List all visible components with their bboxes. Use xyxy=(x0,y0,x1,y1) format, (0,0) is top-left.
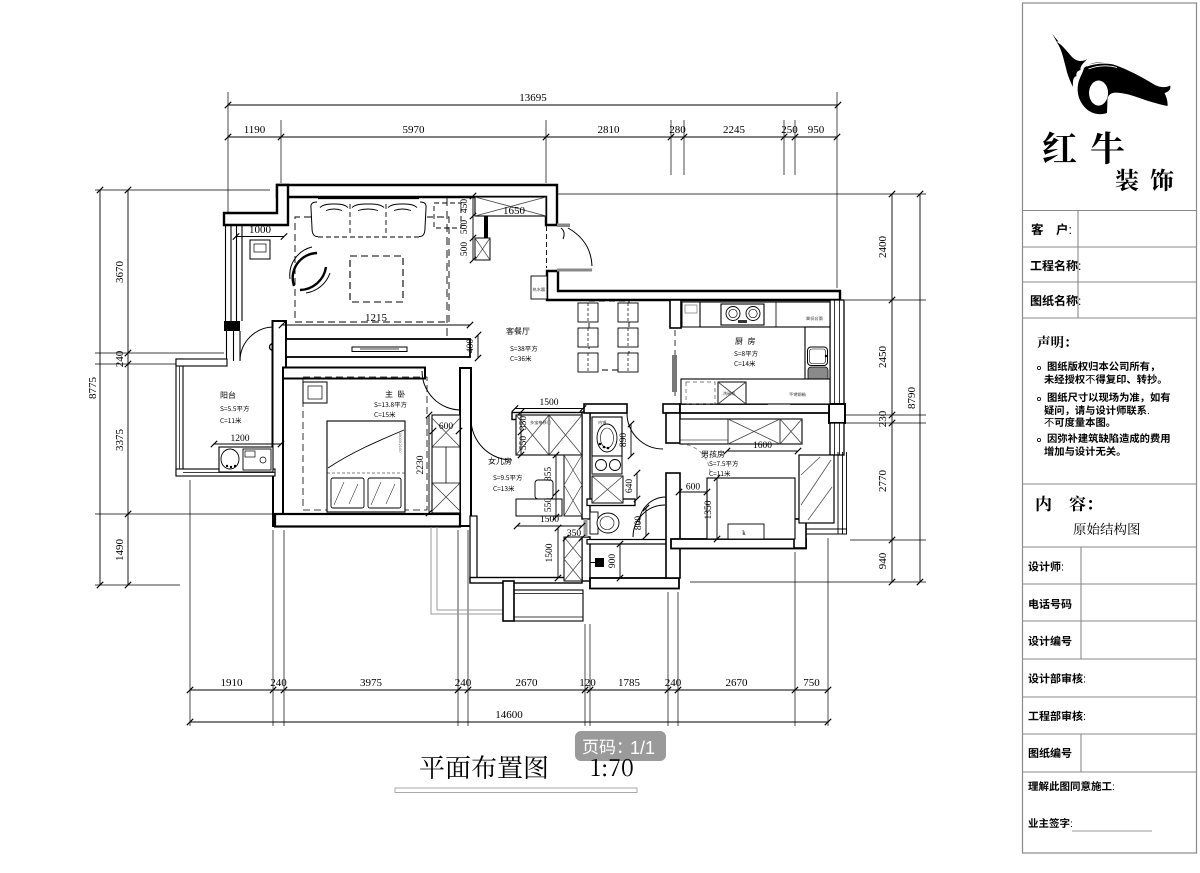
svg-text:13695: 13695 xyxy=(519,92,547,104)
svg-text:C=14米: C=14米 xyxy=(734,358,756,368)
svg-text:400: 400 xyxy=(466,339,476,354)
svg-text:业主签字:: 业主签字: xyxy=(1028,816,1073,831)
svg-text:1190: 1190 xyxy=(244,124,266,136)
svg-text:240: 240 xyxy=(665,677,682,689)
svg-text:890: 890 xyxy=(619,433,629,448)
svg-text:1600: 1600 xyxy=(753,441,772,451)
svg-text:855: 855 xyxy=(544,467,554,482)
svg-text:不可度量本图。: 不可度量本图。 xyxy=(1044,414,1116,429)
svg-text:多宝格移门: 多宝格移门 xyxy=(530,420,551,426)
svg-text:S=8平方: S=8平方 xyxy=(734,348,759,358)
svg-text:640: 640 xyxy=(625,479,635,494)
svg-text:S=13.8平方: S=13.8平方 xyxy=(374,399,408,409)
svg-text:女儿房: 女儿房 xyxy=(488,456,512,467)
svg-text:950: 950 xyxy=(808,124,825,136)
svg-text:C=15米: C=15米 xyxy=(374,409,396,419)
svg-text:8775: 8775 xyxy=(87,377,99,400)
svg-text:500: 500 xyxy=(460,220,470,235)
svg-text:450: 450 xyxy=(460,199,470,214)
svg-text:1800X2100: 1800X2100 xyxy=(398,432,403,453)
svg-text:2770: 2770 xyxy=(877,470,889,493)
svg-text:未经授权不得复印、转抄。: 未经授权不得复印、转抄。 xyxy=(1044,371,1168,386)
svg-text:2245: 2245 xyxy=(723,124,746,136)
svg-text:S=7.5平方: S=7.5平方 xyxy=(709,458,739,468)
svg-text:客餐厅: 客餐厅 xyxy=(506,326,530,337)
svg-text:240: 240 xyxy=(455,677,472,689)
svg-text:1785: 1785 xyxy=(618,677,641,689)
svg-text:理解此图同意施工:: 理解此图同意施工: xyxy=(1028,779,1115,794)
svg-text:设计部审核:: 设计部审核: xyxy=(1028,671,1086,687)
svg-text:C=11米: C=11米 xyxy=(220,415,242,425)
svg-text:声明：: 声明： xyxy=(1037,331,1078,351)
svg-text:2670: 2670 xyxy=(726,677,749,689)
svg-text:550: 550 xyxy=(519,436,529,451)
svg-text:900: 900 xyxy=(608,554,618,569)
svg-text:洗碗机: 洗碗机 xyxy=(723,391,736,397)
svg-text:500: 500 xyxy=(460,242,470,257)
svg-text:1500: 1500 xyxy=(545,543,555,562)
svg-text:8790: 8790 xyxy=(906,387,918,410)
svg-text:2230: 2230 xyxy=(416,455,426,474)
svg-text:1000: 1000 xyxy=(249,224,272,236)
svg-text:工程部审核:: 工程部审核: xyxy=(1028,708,1086,724)
svg-text:C=36米: C=36米 xyxy=(510,353,532,363)
svg-text:230: 230 xyxy=(877,410,889,427)
svg-text:2810: 2810 xyxy=(598,124,621,136)
svg-text:940: 940 xyxy=(877,552,889,569)
svg-text:厨 房: 厨 房 xyxy=(735,336,755,347)
svg-text:800: 800 xyxy=(634,516,644,531)
svg-text:120: 120 xyxy=(579,677,596,689)
svg-text:1350: 1350 xyxy=(704,500,714,519)
svg-text:600: 600 xyxy=(439,422,454,432)
svg-text:350: 350 xyxy=(567,529,582,539)
svg-text:3670: 3670 xyxy=(114,261,126,284)
svg-text:k: k xyxy=(742,529,746,537)
svg-text:不锈钢箱: 不锈钢箱 xyxy=(789,392,806,398)
svg-text:设计师:: 设计师: xyxy=(1028,559,1064,575)
svg-text:350: 350 xyxy=(519,416,529,431)
svg-text:1500: 1500 xyxy=(540,515,559,525)
svg-text:工程名称:: 工程名称: xyxy=(1030,257,1081,274)
svg-text:高低台面: 高低台面 xyxy=(806,316,823,322)
svg-text:内镜: 内镜 xyxy=(598,420,607,426)
svg-text:S=9.5平方: S=9.5平方 xyxy=(493,472,523,482)
svg-text:3975: 3975 xyxy=(360,677,383,689)
svg-text:C=13米: C=13米 xyxy=(493,483,515,493)
svg-text:平面布置图: 平面布置图 xyxy=(419,748,549,785)
svg-text:图纸编号: 图纸编号 xyxy=(1028,745,1072,761)
svg-text:600: 600 xyxy=(686,483,701,493)
svg-text:增加与设计无关。: 增加与设计无关。 xyxy=(1044,443,1126,458)
svg-text:C=11米: C=11米 xyxy=(709,468,731,478)
svg-text:1:70: 1:70 xyxy=(590,750,634,783)
svg-text:1215: 1215 xyxy=(365,312,388,324)
svg-text:5970: 5970 xyxy=(403,124,426,136)
svg-text:1910: 1910 xyxy=(221,677,244,689)
svg-text:阳台: 阳台 xyxy=(220,390,236,401)
svg-text:图纸名称:: 图纸名称: xyxy=(1030,292,1081,309)
svg-text:原始结构图: 原始结构图 xyxy=(1073,518,1141,538)
svg-text:2450: 2450 xyxy=(877,346,889,369)
svg-text:1490: 1490 xyxy=(114,539,126,562)
svg-text:3375: 3375 xyxy=(114,429,126,452)
svg-text:装饰: 装饰 xyxy=(1115,161,1185,196)
svg-text:750: 750 xyxy=(803,677,820,689)
svg-text:1200: 1200 xyxy=(231,434,250,444)
svg-text:2400: 2400 xyxy=(877,236,889,259)
svg-text:内 容：: 内 容： xyxy=(1035,490,1103,515)
svg-text:2670: 2670 xyxy=(516,677,539,689)
svg-text:1500: 1500 xyxy=(540,398,559,408)
svg-text:14600: 14600 xyxy=(495,709,523,721)
svg-text:电话号码: 电话号码 xyxy=(1028,596,1072,612)
svg-text:1650: 1650 xyxy=(503,205,526,217)
svg-text:550: 550 xyxy=(544,498,554,513)
svg-text:热水器: 热水器 xyxy=(533,287,546,293)
svg-text:客 户:: 客 户: xyxy=(1031,219,1072,238)
svg-text:S=38平方: S=38平方 xyxy=(510,343,538,353)
svg-text:设计编号: 设计编号 xyxy=(1028,633,1072,649)
svg-text:S=5.5平方: S=5.5平方 xyxy=(220,403,250,413)
